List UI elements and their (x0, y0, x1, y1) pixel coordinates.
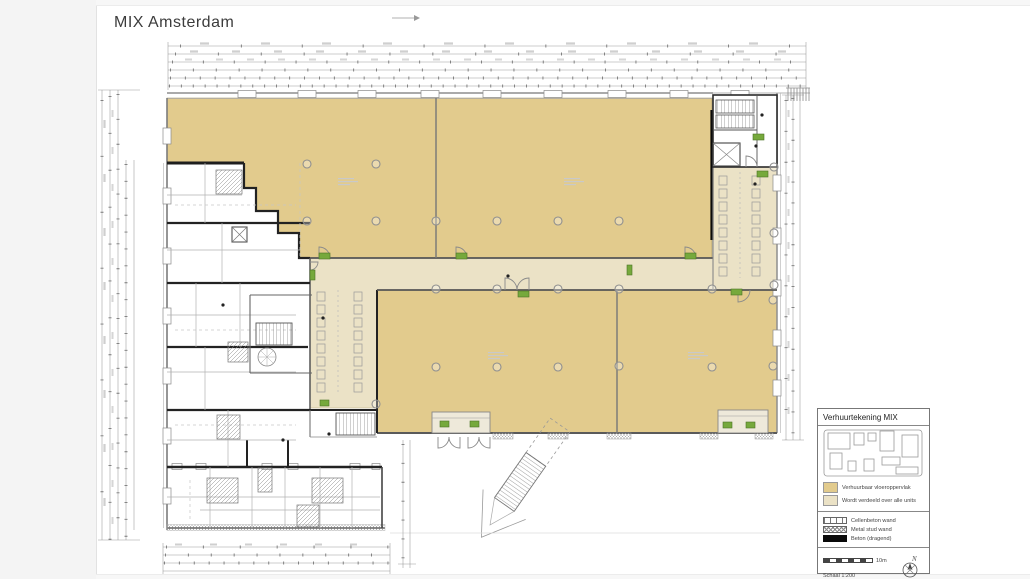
scale-bar (823, 558, 873, 563)
legend-swatch-shared (823, 495, 838, 506)
north-tick-symbol (392, 15, 420, 21)
cellenbeton-pattern-swatch (823, 517, 847, 524)
dimension-lines-center (398, 440, 416, 568)
core-stair (256, 323, 292, 345)
metalstud-pattern-swatch (823, 526, 847, 533)
dimension-lines-top (168, 42, 806, 90)
north-arrow-icon: N (899, 554, 923, 579)
svg-text:N: N (911, 555, 917, 563)
dimension-lines-right (782, 95, 804, 440)
legend-wall-section: Cellenbeton wand Metal stud wand Beton (… (818, 512, 929, 548)
drawing-sheet: MIX Amsterdam (0, 0, 1030, 579)
area-fills (167, 98, 777, 433)
legend-item-beton: Beton (dragend) (823, 535, 924, 542)
legend-area-section: Verhuurbaar vloeroppervlak Wordt verdeel… (818, 479, 929, 512)
legend-item-rentable: Verhuurbaar vloeroppervlak (823, 482, 924, 493)
legend-label-rentable: Verhuurbaar vloeroppervlak (842, 485, 911, 491)
lower-left-hall-rentable-area (377, 290, 617, 433)
site-plan-thumbnail (818, 427, 929, 479)
legend-swatch-rentable (823, 482, 838, 493)
legend-item-cellenbeton: Cellenbeton wand (823, 517, 924, 524)
legend-scale-section: 10m Schaal 1:200 Papierformaat A3 N (818, 548, 929, 578)
legend-title: Verhuurtekening MIX (818, 409, 929, 426)
neighbor-hatch-top-right (786, 88, 810, 101)
right-service-shared-area (713, 167, 777, 290)
legend-box: Verhuurtekening MIX Verhuurbaar vloeropp… (817, 408, 930, 574)
beton-pattern-swatch (823, 535, 847, 542)
service-stair (336, 413, 375, 435)
upper-hall-rentable-area (167, 98, 712, 258)
dimension-lines-bottom-left (163, 543, 390, 574)
legend-item-metalstud: Metal stud wand (823, 526, 924, 533)
scale-bar-label: 10m (876, 558, 887, 564)
legend-label-shared: Wordt verdeeld over alle units (842, 498, 916, 504)
dimension-lines-left (98, 90, 140, 540)
legend-item-shared: Wordt verdeeld over alle units (823, 495, 924, 506)
